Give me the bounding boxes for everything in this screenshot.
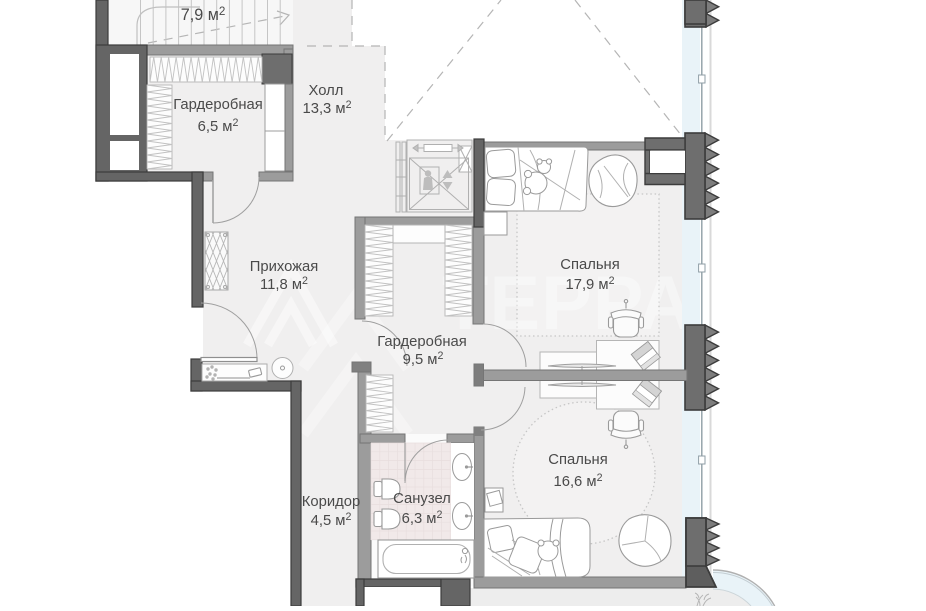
svg-text:4,5 м2: 4,5 м2 xyxy=(311,511,352,529)
svg-text:Санузел: Санузел xyxy=(393,491,451,507)
svg-text:6,3 м2: 6,3 м2 xyxy=(402,509,443,527)
svg-text:Гардеробная: Гардеробная xyxy=(377,334,467,350)
svg-text:9,5 м2: 9,5 м2 xyxy=(403,350,444,368)
svg-text:6,5 м2: 6,5 м2 xyxy=(198,117,239,135)
svg-text:7,9 м2: 7,9 м2 xyxy=(181,5,226,24)
svg-text:11,8 м2: 11,8 м2 xyxy=(260,275,308,293)
svg-text:Спальня: Спальня xyxy=(560,257,619,273)
svg-text:Коридор: Коридор xyxy=(302,494,360,510)
svg-text:Спальня: Спальня xyxy=(548,452,607,468)
svg-text:13,3 м2: 13,3 м2 xyxy=(302,99,351,117)
svg-text:17,9 м2: 17,9 м2 xyxy=(565,275,614,293)
svg-text:Холл: Холл xyxy=(309,83,344,99)
svg-text:Прихожая: Прихожая xyxy=(250,259,319,275)
svg-text:16,6 м2: 16,6 м2 xyxy=(553,472,602,490)
svg-text:Гардеробная: Гардеробная xyxy=(173,97,263,113)
